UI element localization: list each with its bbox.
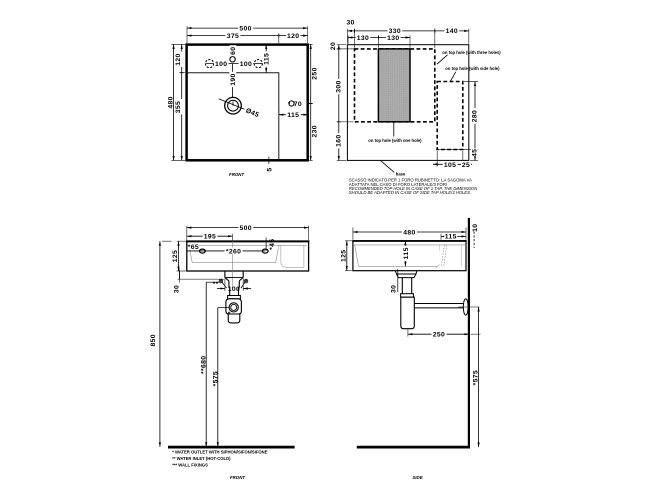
svg-text:115: 115	[264, 53, 271, 65]
svg-text:250: 250	[433, 332, 445, 339]
svg-text:** WATER INLET (HOT-COLD): ** WATER INLET (HOT-COLD)	[172, 456, 231, 461]
svg-text:195: 195	[204, 234, 216, 241]
svg-text:70: 70	[294, 101, 302, 108]
svg-text:480: 480	[403, 229, 415, 236]
svg-text:30: 30	[346, 20, 354, 27]
svg-text:125: 125	[341, 250, 348, 262]
svg-text:125: 125	[172, 250, 179, 262]
svg-text:130: 130	[387, 35, 399, 42]
svg-text:480: 480	[168, 96, 175, 108]
svg-text:120: 120	[175, 53, 182, 65]
svg-text:300: 300	[336, 80, 343, 92]
svg-text:30: 30	[173, 285, 180, 293]
svg-text:100: 100	[240, 61, 252, 68]
svg-text:140: 140	[446, 28, 458, 35]
svg-text:20: 20	[330, 42, 337, 50]
svg-text:100: 100	[215, 61, 227, 68]
svg-text:25: 25	[462, 162, 470, 169]
svg-text:*65: *65	[188, 244, 199, 251]
svg-text:*45: *45	[269, 239, 276, 250]
svg-text:10: 10	[472, 224, 479, 232]
svg-text:on top hole (with one hole): on top hole (with one hole)	[368, 138, 422, 143]
svg-text:FRONT: FRONT	[230, 475, 245, 480]
svg-text:105: 105	[444, 162, 456, 169]
svg-text:on top hole (with side hole): on top hole (with side hole)	[445, 66, 500, 71]
svg-text:250: 250	[311, 67, 318, 79]
svg-text:190: 190	[230, 73, 237, 85]
svg-text:500: 500	[240, 225, 252, 232]
svg-text:30: 30	[390, 285, 397, 293]
svg-text:500: 500	[239, 25, 251, 32]
svg-text:115: 115	[287, 112, 299, 119]
svg-text:*: *	[228, 311, 231, 318]
svg-text:115: 115	[403, 247, 410, 259]
svg-text:*260: *260	[226, 248, 241, 255]
svg-text:45: 45	[471, 149, 478, 157]
svg-text:*575: *575	[473, 370, 480, 385]
svg-text:5: 5	[267, 168, 274, 172]
svg-text:on top hole (with three holes): on top hole (with three holes)	[442, 50, 501, 55]
svg-text:base: base	[396, 171, 406, 176]
svg-text:FRONT: FRONT	[229, 172, 244, 177]
svg-text:60: 60	[230, 47, 237, 55]
svg-text:**680: **680	[201, 356, 208, 374]
svg-text:130: 130	[357, 35, 369, 42]
svg-text:* WATER OUTLET WITH SIPHON/SI: * WATER OUTLET WITH SIPHON/SIFON/SIFONE	[172, 449, 268, 454]
svg-text:355: 355	[175, 101, 182, 113]
svg-text:160: 160	[336, 135, 343, 147]
svg-text:*575: *575	[213, 371, 220, 386]
svg-text:230: 230	[311, 125, 318, 137]
svg-text:*** WALL FIXINGS: *** WALL FIXINGS	[172, 463, 208, 468]
svg-text:850: 850	[150, 334, 157, 346]
svg-text:SHOULD BE ADAPTED IN CASE OF S: SHOULD BE ADAPTED IN CASE OF SIDE TAP HO…	[349, 190, 471, 195]
svg-text:280: 280	[471, 110, 478, 122]
svg-text:375: 375	[227, 33, 239, 40]
svg-text:SIDE: SIDE	[412, 475, 423, 480]
svg-text:115: 115	[445, 234, 457, 241]
svg-text:120: 120	[287, 33, 299, 40]
